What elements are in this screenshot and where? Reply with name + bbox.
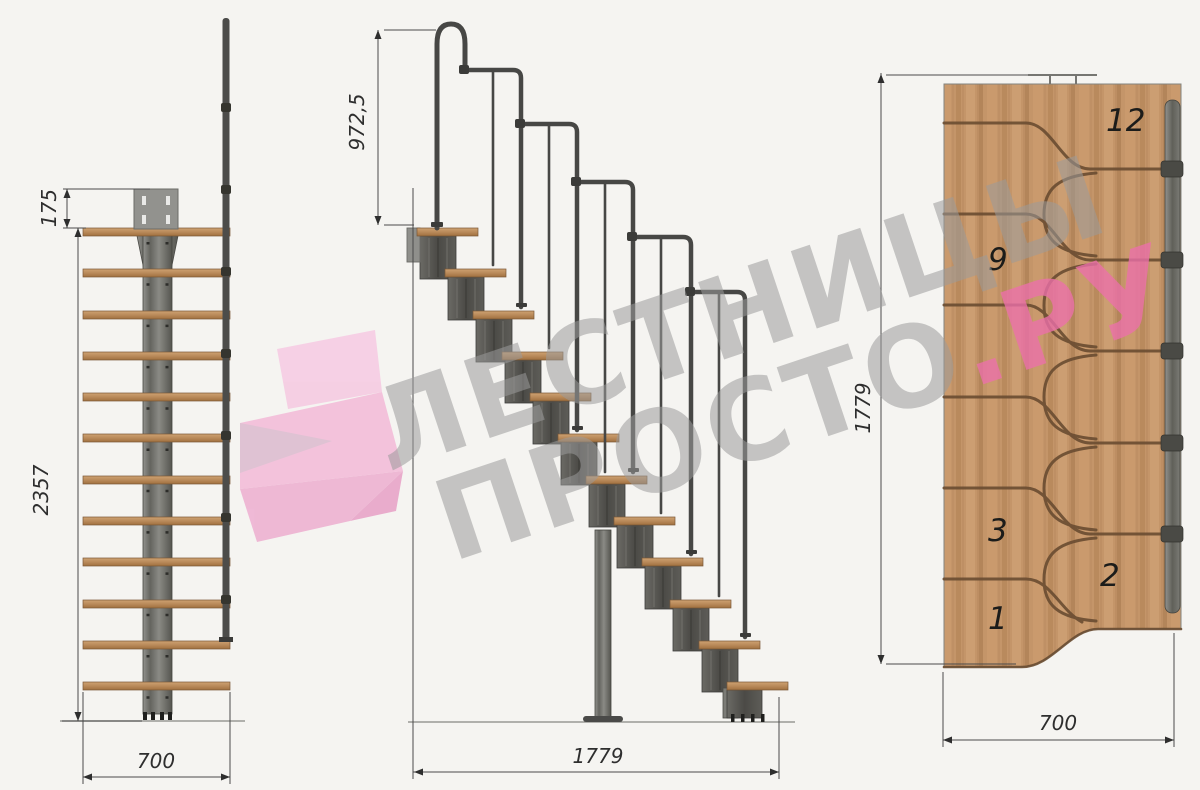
front-mount-plate (134, 189, 178, 229)
staircase-technical-drawing: 175 2357 700 (0, 0, 1200, 790)
front-dim-175-label: 175 (37, 189, 61, 227)
plan-step-label-2: 2 (1100, 558, 1120, 594)
side-dimension-handrail (375, 30, 437, 225)
side-base-module (727, 690, 762, 718)
front-dim-2357-label: 2357 (29, 464, 53, 515)
side-dim-1779-label: 1779 (573, 744, 624, 768)
side-support-pole (595, 530, 611, 718)
drawing-svg: 175 2357 700 (0, 0, 1200, 790)
plan-dim-700-label: 700 (1039, 711, 1077, 735)
plan-wall-bracket (1028, 75, 1097, 84)
plan-step-label-12: 12 (1106, 103, 1145, 139)
front-view: 175 2357 700 (29, 18, 245, 784)
side-dim-972-label: 972,5 (345, 93, 369, 150)
handrail-top-loop (437, 24, 465, 228)
plan-step-label-3: 3 (988, 513, 1008, 549)
plan-step-label-1: 1 (988, 601, 1008, 637)
front-dim-700-label: 700 (137, 749, 175, 773)
side-support-pole-base (583, 716, 623, 722)
front-handrail-post-flange (219, 637, 233, 642)
